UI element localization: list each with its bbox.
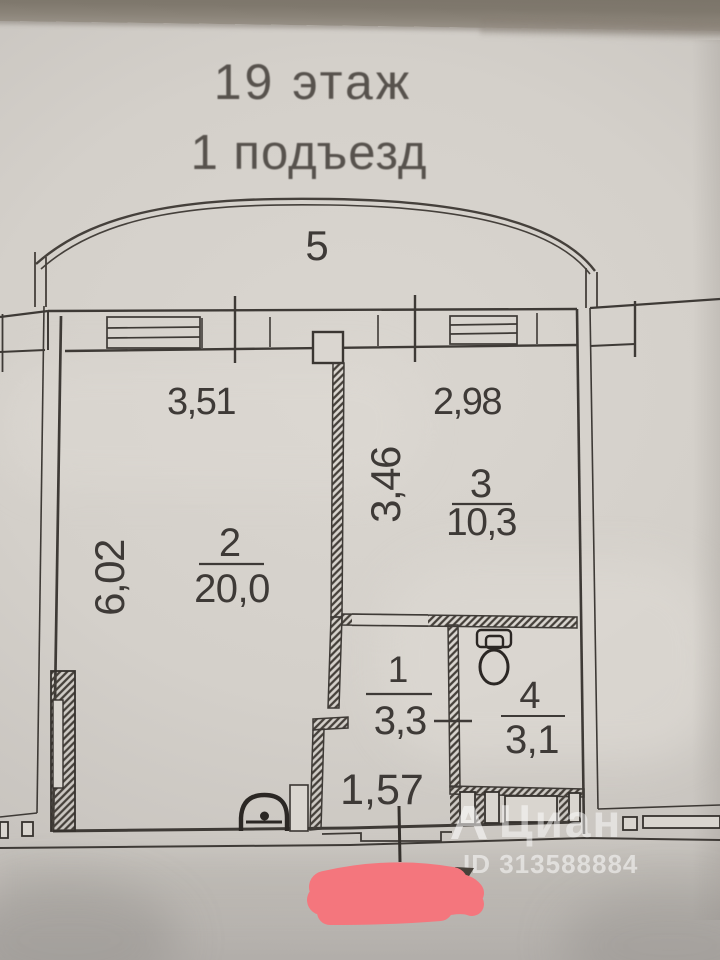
svg-text:2,98: 2,98 [433, 381, 501, 423]
svg-text:4: 4 [519, 675, 540, 717]
svg-text:20,0: 20,0 [194, 567, 270, 611]
svg-text:3,3: 3,3 [374, 699, 427, 743]
svg-text:5: 5 [305, 222, 328, 269]
svg-text:10,3: 10,3 [446, 501, 516, 544]
svg-text:1: 1 [388, 649, 409, 690]
svg-text:Циан: Циан [499, 795, 622, 847]
svg-text:1,57: 1,57 [340, 766, 424, 814]
svg-text:3,1: 3,1 [505, 718, 559, 762]
svg-text:19 этаж: 19 этаж [214, 54, 413, 110]
svg-text:1 подъезд: 1 подъезд [191, 126, 428, 180]
svg-text:3,46: 3,46 [362, 447, 409, 523]
svg-text:2: 2 [219, 521, 241, 565]
svg-text:ID 313588884: ID 313588884 [463, 849, 638, 879]
svg-text:3: 3 [470, 462, 492, 506]
svg-text:3,51: 3,51 [167, 381, 235, 423]
svg-text:6,02: 6,02 [86, 540, 133, 616]
